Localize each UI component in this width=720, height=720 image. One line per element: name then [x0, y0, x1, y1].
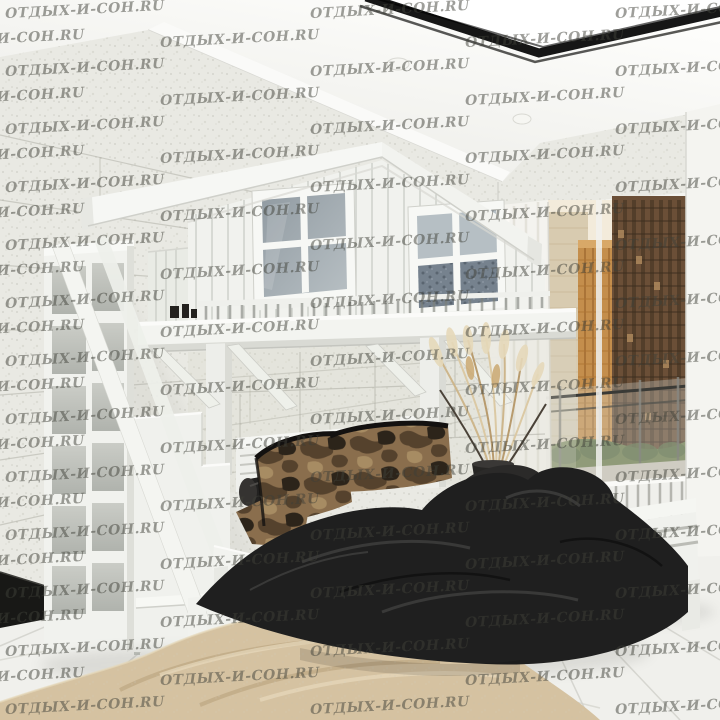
pillow-right [330, 423, 452, 492]
loft-window-left [248, 183, 358, 311]
room-scene [0, 0, 720, 720]
screenshot-root: ОТДЫХ-И-СОН.RUОТДЫХ-И-СОН.RUОТДЫХ-И-СОН.… [0, 0, 720, 720]
recessed-light [513, 114, 531, 124]
recessed-light [387, 58, 409, 70]
